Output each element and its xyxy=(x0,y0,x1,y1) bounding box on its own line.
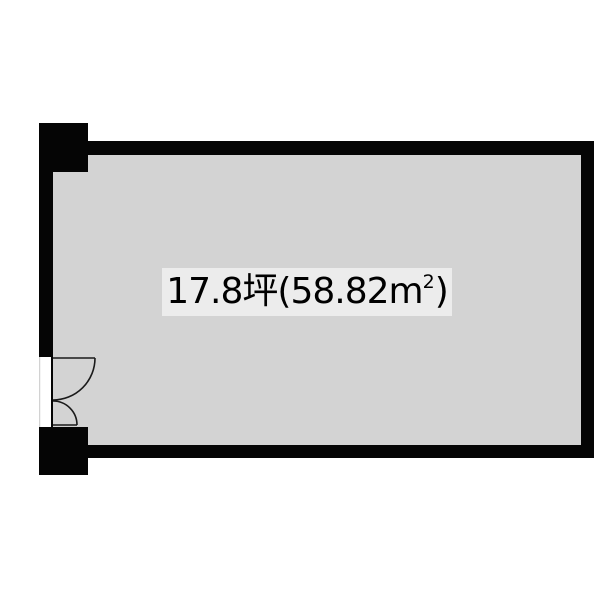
area-value-sqm: 58.82 xyxy=(290,271,388,312)
pillar-bottom-left xyxy=(39,427,88,475)
area-unit-sqm: m2 xyxy=(389,271,435,312)
pillar-top-left xyxy=(39,123,88,172)
area-value-tsubo: 17.8 xyxy=(166,271,242,312)
area-label-band: 17.8坪(58.82m2) xyxy=(162,268,452,316)
area-unit-sqm-superscript: 2 xyxy=(423,273,435,292)
area-unit-tsubo: 坪 xyxy=(242,271,277,312)
paren-close: ) xyxy=(435,271,448,312)
floor-plan-canvas: 17.8坪(58.82m2) xyxy=(0,0,600,600)
area-unit-sqm-base: m xyxy=(389,271,423,312)
area-label-text: 17.8坪(58.82m2) xyxy=(166,274,448,310)
door-opening xyxy=(39,357,51,427)
paren-open: ( xyxy=(277,271,290,312)
